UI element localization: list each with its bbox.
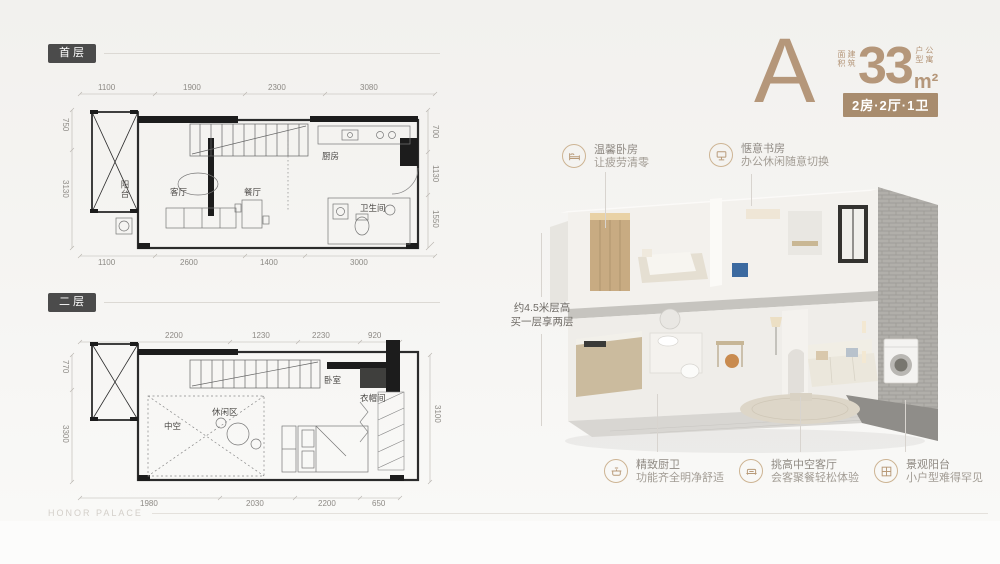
callout-balcony: 景观阳台 小户型难得罕见 — [874, 459, 983, 485]
cabinet — [360, 368, 386, 388]
blue-storage-box — [732, 263, 748, 277]
dimension-label: 2200 — [318, 500, 336, 508]
window-icon — [874, 459, 898, 483]
callout-title: 惬意书房 — [741, 143, 829, 156]
height-note: 约4.5米层高 买一层享两层 — [505, 301, 579, 329]
floor-badge-second: 二层 — [48, 293, 96, 312]
dimension-label: 750 — [61, 118, 69, 131]
dimension-label: 3100 — [433, 405, 441, 423]
floor-badge-second-leader — [104, 302, 440, 303]
dining-table — [235, 200, 269, 228]
callout-desc: 办公休闲随意切换 — [741, 156, 829, 169]
dimension-label: 2230 — [312, 332, 330, 340]
first-floor-plan-drawing — [60, 80, 445, 270]
room-label-balcony: 阳台 — [120, 180, 129, 199]
coffee-table — [790, 393, 812, 401]
room-label-leisure: 休闲区 — [212, 408, 238, 417]
floor-badge-first: 首层 — [48, 44, 96, 63]
dimension-label: 2030 — [246, 500, 264, 508]
desk-chair — [725, 354, 739, 368]
dimension-label: 1100 — [98, 259, 115, 267]
partition-wall — [710, 198, 722, 287]
callout-leader-line — [657, 394, 658, 452]
wardrobe — [282, 426, 296, 472]
dimension-label: 3300 — [61, 425, 69, 443]
dimension-label: 650 — [372, 500, 385, 508]
cloakroom-hatch — [378, 392, 404, 470]
washing-machine — [884, 339, 918, 383]
stairs — [190, 360, 320, 388]
unit-letter: A — [754, 28, 815, 114]
floor-badge-first-label: 首层 — [59, 47, 87, 59]
dimension-label: 1100 — [98, 84, 115, 92]
callout-title: 景观阳台 — [906, 459, 983, 472]
dimension-label: 2200 — [165, 332, 183, 340]
callout-title: 温馨卧房 — [594, 144, 649, 157]
unit-area-block: 建筑面积 33 公寓户型 m² — [836, 44, 938, 92]
room-label-bath: 卫生间 — [360, 204, 386, 213]
dimension-label: 920 — [368, 332, 381, 340]
room-label-kitchen: 厨房 — [322, 152, 339, 161]
wall-light — [862, 321, 866, 333]
footer-strip — [0, 521, 1000, 564]
callout-title: 挑高中空客厅 — [771, 459, 859, 472]
double-height-void — [148, 396, 264, 476]
dimension-label: 3130 — [61, 180, 69, 198]
room-label-living: 客厅 — [170, 188, 187, 197]
area-unit: m² — [914, 72, 938, 92]
callout-desc: 会客聚餐轻松体验 — [771, 472, 859, 485]
note-leader-line-top — [541, 233, 542, 297]
desk — [716, 341, 744, 345]
bed — [298, 426, 368, 472]
callout-leader-line — [905, 400, 906, 452]
dimension-label: 700 — [431, 125, 439, 138]
type-label-vertical: 公寓户型 — [914, 46, 934, 70]
round-mirror — [660, 309, 680, 329]
sofa-icon — [739, 459, 763, 483]
wall-light — [862, 351, 866, 363]
toilet — [681, 364, 699, 378]
room-label-dining: 餐厅 — [244, 188, 261, 197]
stairs — [190, 124, 308, 156]
callout-kitchen-bath: 精致厨卫 功能齐全明净舒适 — [604, 459, 724, 485]
room-label-void: 中空 — [164, 422, 181, 431]
callout-living: 挑高中空客厅 会客聚餐轻松体验 — [739, 459, 859, 485]
callout-bedroom: 温馨卧房 让疲劳清零 — [562, 144, 649, 170]
kitchen-counter — [318, 126, 410, 144]
note-leader-line-bottom — [541, 334, 542, 426]
folding-door — [360, 402, 368, 442]
footer-divider — [152, 513, 988, 514]
watermark-text: HONOR PALACE — [48, 508, 143, 518]
leisure-furniture — [216, 418, 261, 449]
height-note-line2: 买一层享两层 — [505, 315, 579, 329]
second-floor-plan-drawing — [60, 330, 445, 510]
marketing-sheet: 首层 — [0, 0, 1000, 564]
callout-leader-line — [800, 397, 801, 452]
area-value: 33 — [858, 44, 912, 88]
entry-door-arc — [392, 168, 418, 194]
floor-plan-first: 1100 1900 2300 3080 1100 2600 1400 3000 … — [60, 80, 445, 270]
room-label-cloak: 衣帽间 — [360, 394, 386, 403]
washing-machine-plan — [116, 218, 132, 234]
callout-desc: 小户型难得罕见 — [906, 472, 983, 485]
area-label-vertical: 建筑面积 — [836, 50, 856, 74]
dimension-label: 1400 — [260, 259, 278, 267]
callout-desc: 功能齐全明净舒适 — [636, 472, 724, 485]
callout-study: 惬意书房 办公休闲随意切换 — [709, 143, 829, 169]
dimension-label: 1550 — [431, 210, 439, 228]
bed-duvet — [646, 252, 696, 275]
callout-desc: 让疲劳清零 — [594, 157, 649, 170]
study-icon — [709, 143, 733, 167]
dimension-label: 3080 — [360, 84, 378, 92]
dimension-label: 3000 — [350, 259, 368, 267]
bed-icon — [562, 144, 586, 168]
dimension-label: 1900 — [183, 84, 201, 92]
apartment-3d-render — [550, 183, 945, 468]
unit-layout-badge: 2房·2厅·1卫 — [843, 93, 938, 117]
cutaway-render-drawing — [550, 183, 945, 468]
dimension-label: 1230 — [252, 332, 270, 340]
floor-badge-first-leader — [104, 53, 440, 54]
dimension-label: 2600 — [180, 259, 198, 267]
dimension-label: 770 — [61, 360, 69, 373]
dimension-label: 1980 — [140, 500, 158, 508]
room-label-bedroom: 卧室 — [324, 376, 341, 385]
kitchen-icon — [604, 459, 628, 483]
callout-leader-line — [605, 172, 606, 228]
height-note-line1: 约4.5米层高 — [505, 301, 579, 315]
dimension-label: 2300 — [268, 84, 286, 92]
dimension-label: 1130 — [431, 165, 439, 182]
floor-plan-second: 2200 1230 2230 920 1980 2030 2200 650 77… — [60, 330, 445, 510]
callout-leader-line — [751, 174, 752, 206]
living-furniture — [166, 173, 236, 228]
floor-badge-second-label: 二层 — [59, 296, 87, 308]
study-nook — [788, 211, 822, 255]
callout-title: 精致厨卫 — [636, 459, 724, 472]
cooktop — [584, 341, 606, 347]
